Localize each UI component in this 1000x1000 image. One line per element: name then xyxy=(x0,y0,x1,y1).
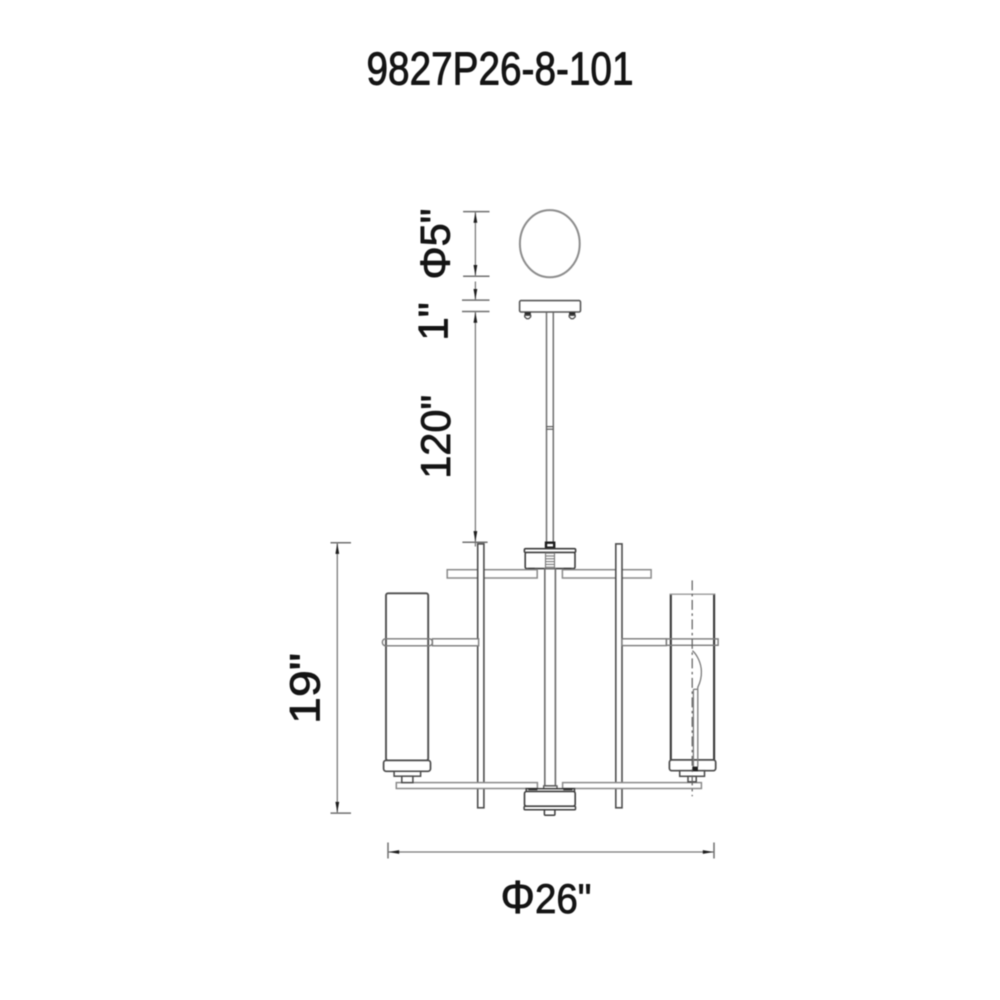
svg-text:Φ5": Φ5" xyxy=(412,209,459,280)
svg-text:19": 19" xyxy=(282,653,330,724)
svg-text:1": 1" xyxy=(410,302,457,340)
svg-text:Φ26": Φ26" xyxy=(501,871,592,923)
svg-text:120": 120" xyxy=(412,395,459,479)
svg-text:9827P26-8-101: 9827P26-8-101 xyxy=(367,43,634,95)
